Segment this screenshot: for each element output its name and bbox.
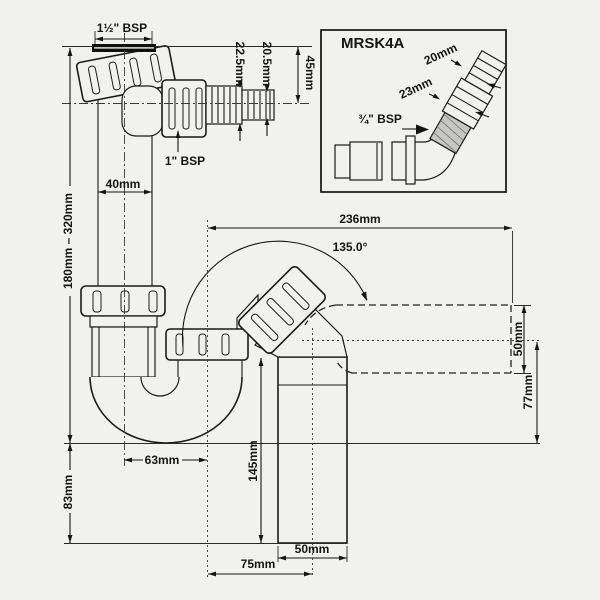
label-inset-thread: ¾" BSP — [358, 112, 402, 126]
technical-drawing-page: 1½" BSP 22.5mm 20.5mm 45mm 1" BSP 40mm 1… — [0, 0, 600, 600]
dim-outlet-drop — [535, 342, 540, 443]
label-hose-small: 20.5mm — [260, 42, 274, 87]
outlet-nut — [166, 329, 248, 360]
label-height-range: 180mm – 320mm — [61, 193, 75, 289]
branch-hose-tail — [206, 86, 274, 124]
label-outlet-height: 50mm — [511, 322, 525, 357]
label-inlet-thread: 1½" BSP — [97, 21, 147, 35]
telescopic-nut — [81, 286, 165, 316]
label-outlet-drop: 77mm — [521, 375, 535, 410]
label-outlet-offset: 75mm — [241, 557, 276, 571]
dim-overall-width — [208, 226, 513, 303]
label-overall-width: 236mm — [339, 212, 380, 226]
trap-socket — [92, 327, 155, 377]
dim-outlet-offset — [208, 572, 312, 577]
label-inlet-drop: 45mm — [303, 56, 317, 91]
dim-inlet-drop — [296, 47, 301, 103]
label-hose-large: 22.5mm — [233, 42, 247, 87]
product-code: MRSK4A — [341, 35, 405, 52]
telescopic-collar — [90, 316, 157, 327]
label-bend-offset: 63mm — [145, 453, 180, 467]
inset-adaptor — [335, 142, 382, 180]
label-water-seal: 83mm — [61, 475, 75, 510]
label-branch-thread: 1" BSP — [165, 154, 205, 168]
label-elbow-angle: 135.0° — [333, 240, 368, 254]
branch-nut — [162, 80, 206, 137]
label-outlet-width: 50mm — [295, 542, 330, 556]
label-pipe-width: 40mm — [106, 177, 141, 191]
trap-technical-drawing: 1½" BSP 22.5mm 20.5mm 45mm 1" BSP 40mm 1… — [0, 0, 600, 600]
branch-elbow-dome — [122, 86, 163, 136]
label-tail-length: 145mm — [246, 440, 260, 481]
inset-box: MRSK4A — [321, 30, 510, 192]
